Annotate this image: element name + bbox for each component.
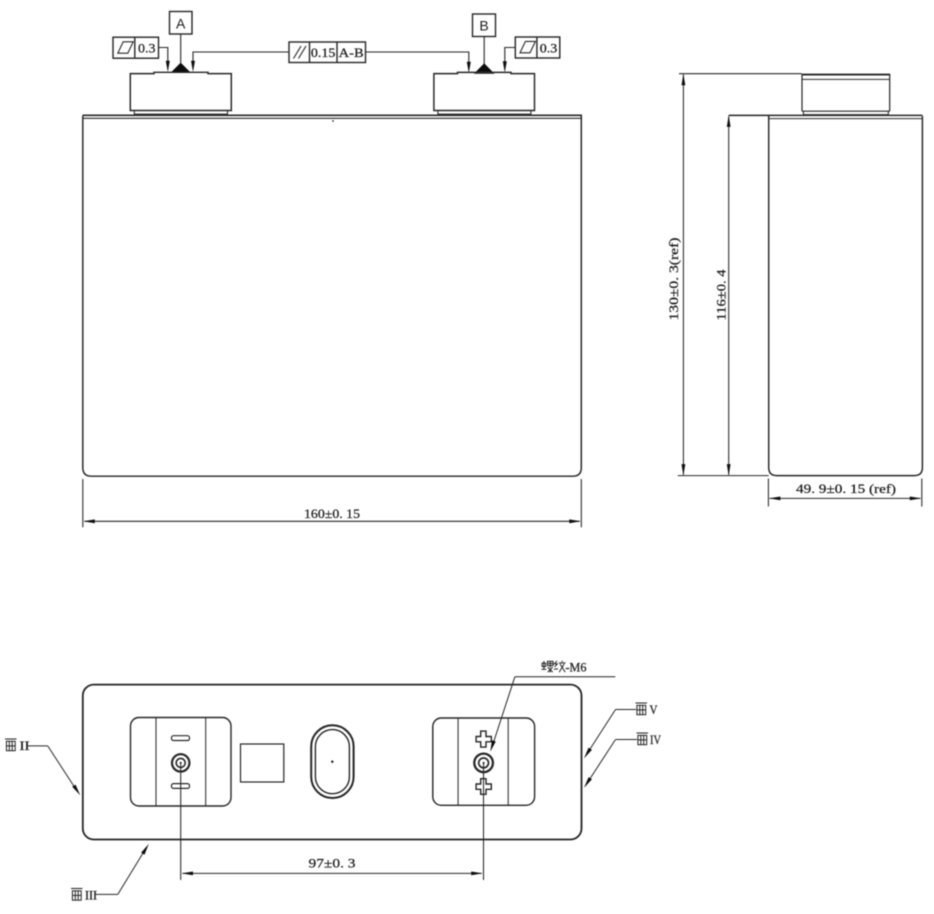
- svg-text:A: A: [176, 15, 186, 31]
- svg-text:49. 9±0. 15 (ref): 49. 9±0. 15 (ref): [796, 481, 896, 496]
- svg-text:V: V: [650, 702, 659, 717]
- svg-text:B: B: [479, 17, 488, 33]
- svg-text:116±0. 4: 116±0. 4: [714, 269, 729, 321]
- svg-text:IV: IV: [650, 732, 661, 747]
- svg-text:160±0. 15: 160±0. 15: [304, 506, 360, 521]
- svg-text:0.3: 0.3: [138, 41, 156, 56]
- svg-text:130±0. 3(ref): 130±0. 3(ref): [666, 238, 681, 321]
- svg-text:97±0. 3: 97±0. 3: [309, 856, 356, 871]
- svg-text:0.3: 0.3: [540, 40, 558, 55]
- svg-text:-M6: -M6: [566, 660, 587, 675]
- svg-text:A-B: A-B: [339, 45, 364, 60]
- svg-text:0.15: 0.15: [311, 45, 336, 60]
- svg-text:III: III: [85, 888, 97, 903]
